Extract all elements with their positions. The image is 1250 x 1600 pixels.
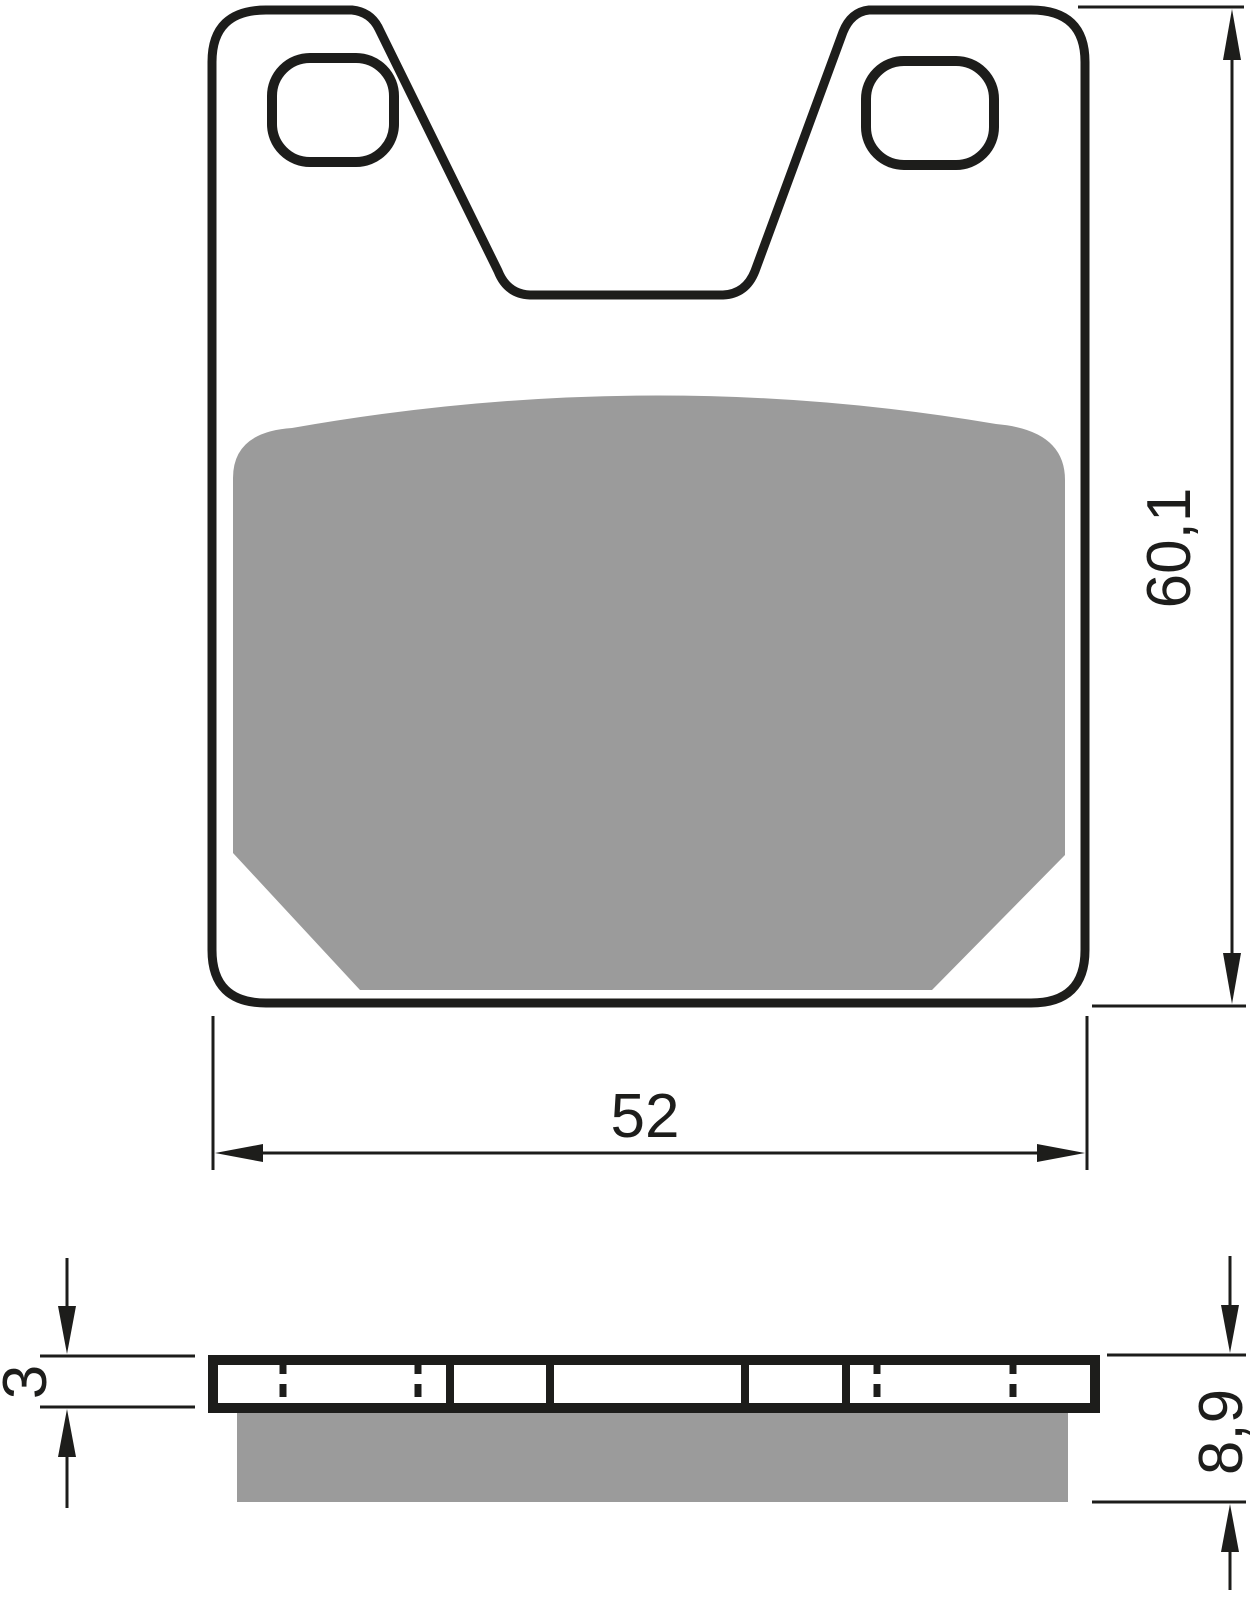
backplate-side [213, 1360, 1095, 1408]
arrowhead-left-icon [215, 1144, 263, 1162]
drawing-canvas: 60,1 52 [0, 0, 1250, 1600]
backplate-thickness-label: 3 [0, 1365, 60, 1399]
pad-width-label: 52 [611, 1082, 680, 1151]
arrowhead-up-icon [1223, 9, 1241, 60]
dimension-pad-height: 60,1 [1078, 7, 1246, 1006]
pad-height-label: 60,1 [1135, 488, 1204, 609]
arrowhead-right-icon [1037, 1144, 1085, 1162]
mounting-hole-right [866, 61, 994, 165]
arrowhead-down-icon [1223, 953, 1241, 1004]
dimension-pad-width: 52 [213, 1016, 1087, 1170]
side-view [213, 1358, 1095, 1502]
front-view [212, 10, 1085, 1003]
arrowhead-down-icon [1221, 1305, 1239, 1353]
friction-material-side [237, 1408, 1068, 1502]
friction-material-front [233, 395, 1065, 990]
technical-drawing-page: 60,1 52 [0, 0, 1250, 1600]
dimension-backplate-thickness: 3 [0, 1258, 195, 1508]
total-thickness-label: 8,9 [1187, 1389, 1250, 1475]
arrowhead-up-icon [58, 1409, 76, 1457]
arrowhead-down-icon [58, 1306, 76, 1354]
dimension-total-thickness: 8,9 [1092, 1256, 1250, 1590]
mounting-hole-left [272, 58, 394, 162]
arrowhead-up-icon [1221, 1504, 1239, 1552]
